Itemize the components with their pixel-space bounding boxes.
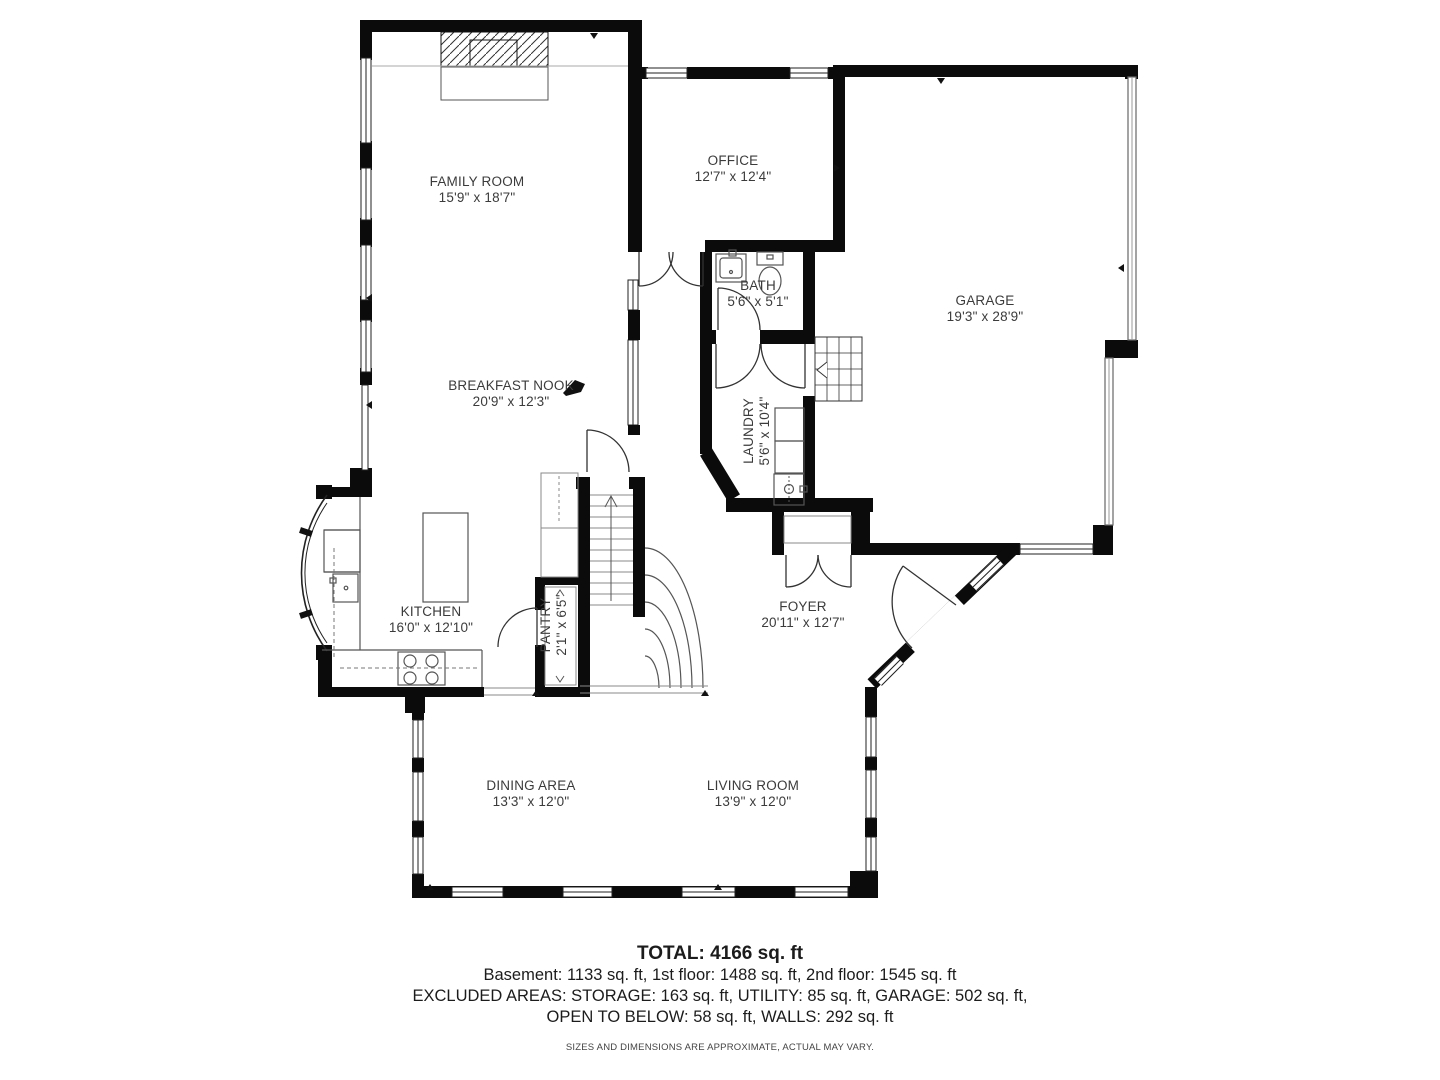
- total-area: TOTAL: 4166 sq. ft: [0, 942, 1440, 965]
- room-name: FAMILY ROOM: [430, 174, 525, 190]
- disclaimer: SIZES AND DIMENSIONS ARE APPROXIMATE, AC…: [0, 1042, 1440, 1053]
- room-dims: 2'1" x 6'5": [554, 594, 570, 655]
- room-dims: 13'9" x 12'0": [707, 794, 799, 810]
- room-dims: 13'3" x 12'0": [486, 794, 575, 810]
- floor-areas: Basement: 1133 sq. ft, 1st floor: 1488 s…: [0, 965, 1440, 986]
- excluded-areas-2: OPEN TO BELOW: 58 sq. ft, WALLS: 292 sq.…: [0, 1007, 1440, 1028]
- room-dims: 5'6" x 10'4": [757, 397, 773, 466]
- room-dims: 12'7" x 12'4": [695, 169, 772, 185]
- room-label-breakfast-nook: BREAKFAST NOOK 20'9" x 12'3": [448, 378, 574, 410]
- floor-plan-page: FAMILY ROOM 15'9" x 18'7" OFFICE 12'7" x…: [0, 0, 1440, 1080]
- room-label-foyer: FOYER 20'11" x 12'7": [761, 599, 844, 631]
- room-name: FOYER: [761, 599, 844, 615]
- room-label-laundry: LAUNDRY 5'6" x 10'4": [741, 397, 773, 466]
- room-name: DINING AREA: [486, 778, 575, 794]
- room-label-pantry: PANTRY 2'1" x 6'5": [538, 594, 570, 655]
- entry-closet: [784, 516, 851, 543]
- room-label-garage: GARAGE 19'3" x 28'9": [947, 293, 1024, 325]
- room-dims: 15'9" x 18'7": [430, 190, 525, 206]
- door-glyphs: [498, 252, 956, 648]
- garage-door-glyphs: [1105, 77, 1136, 525]
- room-name: OFFICE: [695, 153, 772, 169]
- room-label-dining-area: DINING AREA 13'3" x 12'0": [486, 778, 575, 810]
- room-name: BATH: [727, 278, 788, 294]
- room-dims: 16'0" x 12'10": [389, 620, 473, 636]
- room-label-bath: BATH 5'6" x 5'1": [727, 278, 788, 310]
- winder-stairs: [484, 548, 708, 695]
- room-name: KITCHEN: [389, 604, 473, 620]
- room-dims: 20'11" x 12'7": [761, 615, 844, 631]
- room-label-living-room: LIVING ROOM 13'9" x 12'0": [707, 778, 799, 810]
- excluded-areas: EXCLUDED AREAS: STORAGE: 163 sq. ft, UTI…: [0, 986, 1440, 1007]
- room-name: PANTRY: [538, 594, 554, 655]
- bay-window: [300, 495, 327, 651]
- laundry-fixtures: [774, 408, 807, 505]
- basement-staircase: [815, 337, 862, 401]
- main-staircase: [590, 495, 633, 605]
- room-name: LAUNDRY: [741, 397, 757, 466]
- room-dims: 5'6" x 5'1": [727, 294, 788, 310]
- room-label-office: OFFICE 12'7" x 12'4": [695, 153, 772, 185]
- room-name: LIVING ROOM: [707, 778, 799, 794]
- room-name: GARAGE: [947, 293, 1024, 309]
- room-name: BREAKFAST NOOK: [448, 378, 574, 394]
- room-dims: 20'9" x 12'3": [448, 394, 574, 410]
- room-label-kitchen: KITCHEN 16'0" x 12'10": [389, 604, 473, 636]
- room-label-family-room: FAMILY ROOM 15'9" x 18'7": [430, 174, 525, 206]
- fireplace-icon: [372, 32, 628, 100]
- area-summary: TOTAL: 4166 sq. ft Basement: 1133 sq. ft…: [0, 942, 1440, 1053]
- room-dims: 19'3" x 28'9": [947, 309, 1024, 325]
- walls: [316, 20, 1138, 898]
